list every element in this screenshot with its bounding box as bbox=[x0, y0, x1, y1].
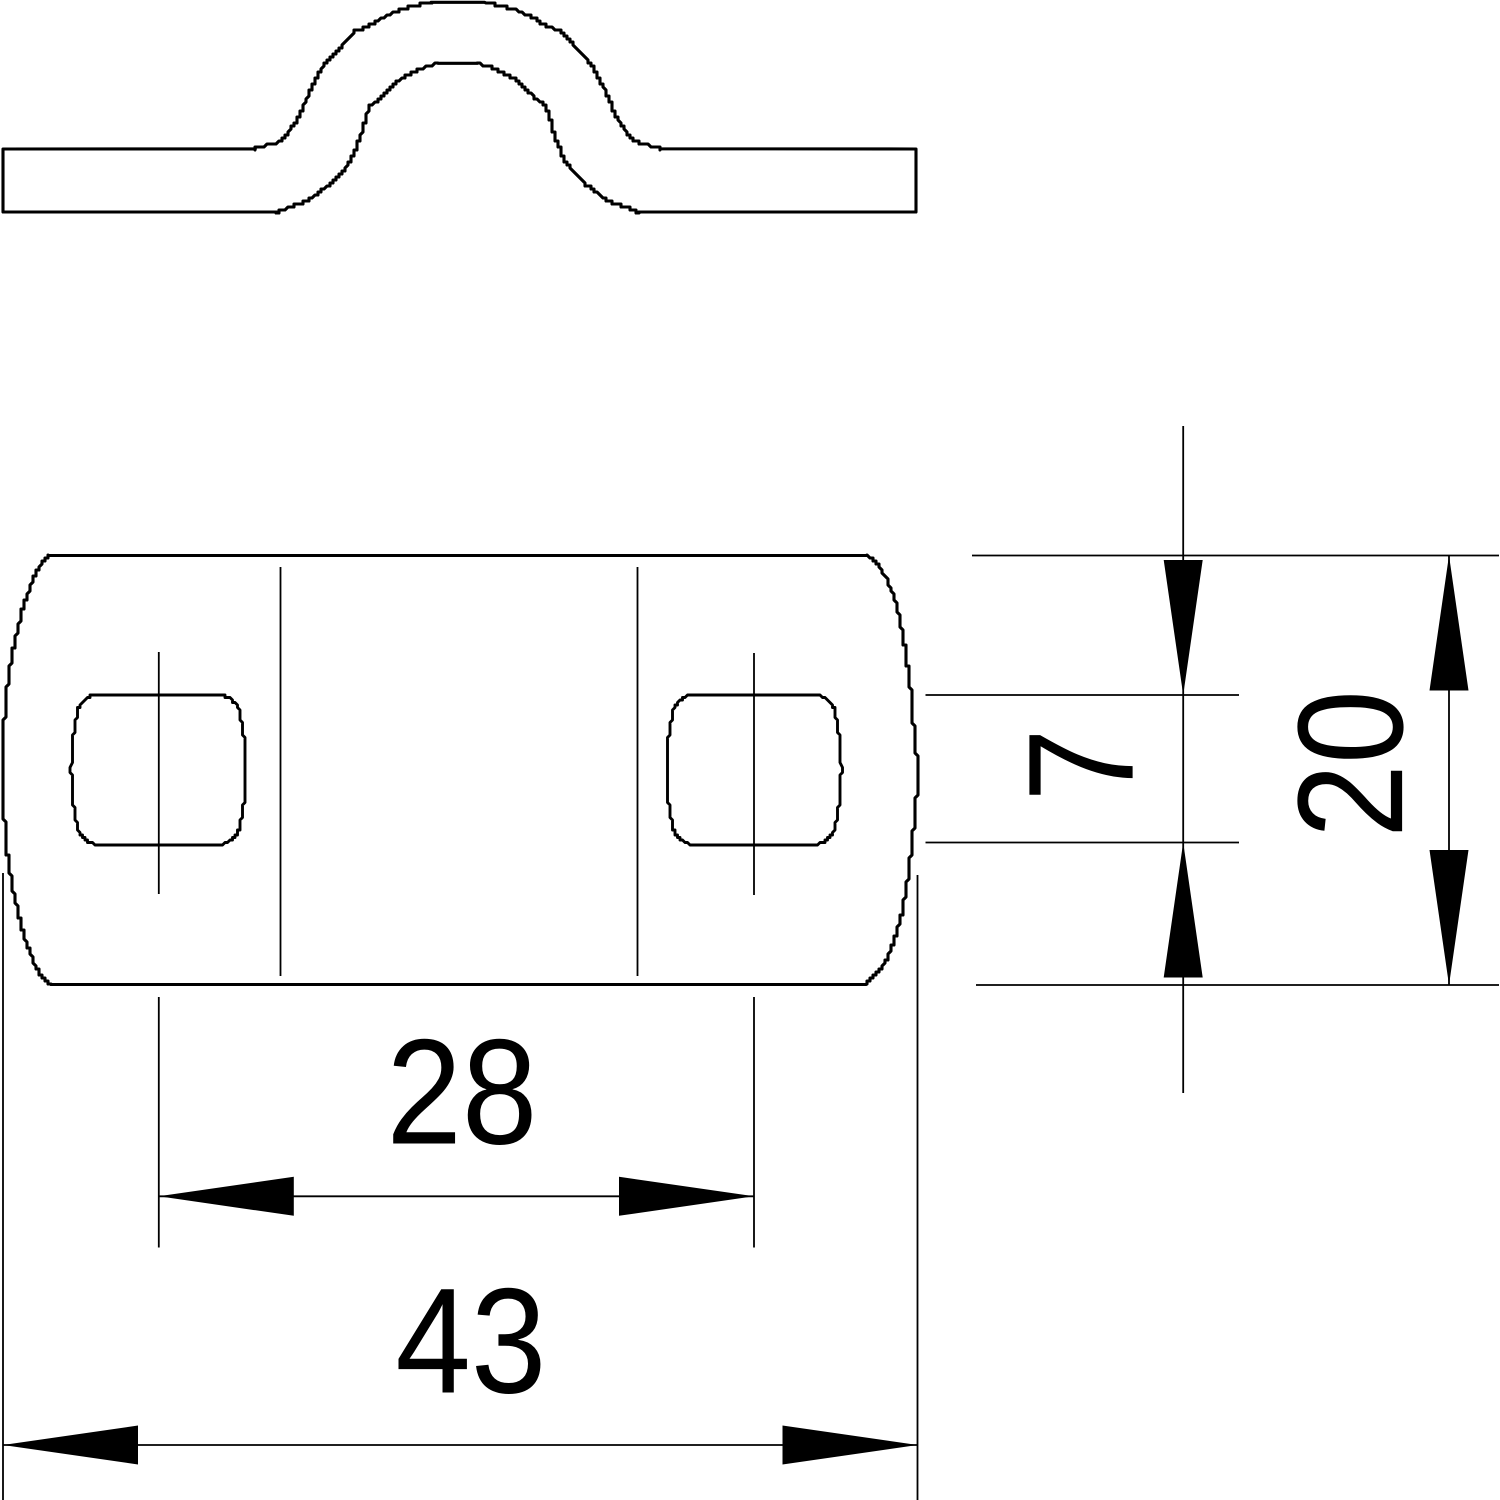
svg-text:7: 7 bbox=[997, 729, 1165, 802]
svg-text:43: 43 bbox=[395, 1257, 546, 1425]
svg-text:28: 28 bbox=[386, 1008, 537, 1176]
svg-text:20: 20 bbox=[1266, 690, 1434, 838]
